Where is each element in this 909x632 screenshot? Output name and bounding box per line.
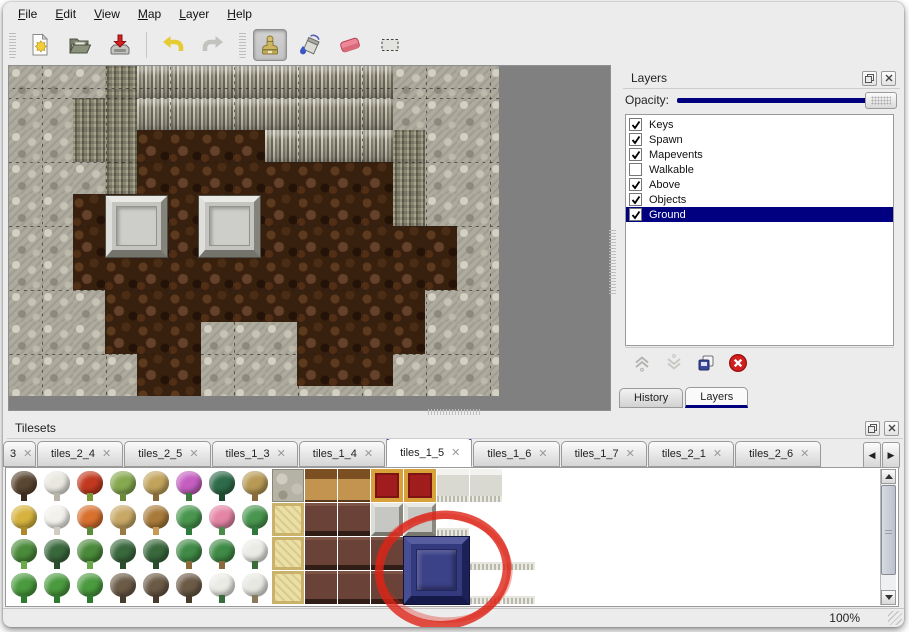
tileset-tab-tiles_1_3[interactable]: tiles_1_3✕	[212, 441, 298, 467]
map-tile[interactable]	[457, 386, 489, 396]
map-tile[interactable]	[233, 130, 265, 162]
tileset-cell-maroon[interactable]	[338, 571, 370, 604]
tileset-cell-carpet[interactable]	[371, 469, 403, 502]
map-tile[interactable]	[9, 290, 41, 322]
float-panel-button[interactable]	[862, 71, 877, 86]
map-tile[interactable]	[137, 66, 169, 98]
tileset-cell-tanfloor[interactable]	[338, 469, 370, 502]
tileset-tab-tiles_1_6[interactable]: tiles_1_6✕	[473, 441, 559, 467]
map-tile[interactable]	[361, 386, 393, 396]
tileset-cell-bush[interactable]	[41, 537, 73, 570]
tileset-cell-maroon[interactable]	[305, 503, 337, 536]
tileset-cell-bush-pink[interactable]	[173, 469, 205, 502]
map-tile[interactable]	[425, 258, 457, 290]
new-file-button[interactable]	[23, 29, 57, 61]
map-tile[interactable]	[41, 66, 73, 98]
tileset-cell-yellowfloor[interactable]	[272, 571, 304, 604]
map-tile[interactable]	[105, 98, 137, 130]
map-tile[interactable]	[73, 194, 105, 226]
tileset-content[interactable]	[5, 467, 899, 607]
map-tile[interactable]	[233, 386, 265, 396]
tileset-tab-tiles_1_4[interactable]: tiles_1_4✕	[299, 441, 385, 467]
map-tile[interactable]	[233, 258, 265, 290]
save-file-button[interactable]	[103, 29, 137, 61]
layer-row-mapevents[interactable]: Mapevents	[626, 147, 893, 162]
horizontal-splitter-grip[interactable]	[428, 409, 480, 415]
tab-history[interactable]: History	[619, 388, 683, 408]
map-tile[interactable]	[393, 322, 425, 354]
tileset-cell-bush[interactable]	[140, 537, 172, 570]
close-panel-button[interactable]	[881, 71, 896, 86]
map-tile[interactable]	[457, 226, 489, 258]
map-tile[interactable]	[265, 258, 297, 290]
map-tile[interactable]	[393, 194, 425, 226]
stamp-tool-button[interactable]	[253, 29, 287, 61]
map-tile[interactable]	[265, 162, 297, 194]
map-tile[interactable]	[137, 162, 169, 194]
open-file-button[interactable]	[63, 29, 97, 61]
map-tile[interactable]	[9, 162, 41, 194]
map-tile[interactable]	[329, 290, 361, 322]
tileset-cell-tanfloor[interactable]	[305, 469, 337, 502]
tileset-cell-cone[interactable]	[74, 571, 106, 604]
tileset-cell-tree-snow[interactable]	[41, 469, 73, 502]
tileset-cell-stone[interactable]	[272, 469, 304, 502]
map-tile[interactable]	[201, 66, 233, 98]
layer-visibility-checkbox[interactable]	[629, 148, 642, 161]
map-tile[interactable]	[425, 290, 457, 322]
map-tile[interactable]	[489, 290, 499, 322]
map-tile[interactable]	[73, 226, 105, 258]
map-tile[interactable]	[9, 194, 41, 226]
map-tile[interactable]	[233, 66, 265, 98]
map-tile[interactable]	[457, 130, 489, 162]
map-tile[interactable]	[233, 290, 265, 322]
tileset-cell-trunk[interactable]	[140, 469, 172, 502]
map-tile[interactable]	[297, 130, 329, 162]
map-tile[interactable]	[297, 162, 329, 194]
layer-row-keys[interactable]: Keys	[626, 117, 893, 132]
tileset-tab-3[interactable]: 3✕	[3, 441, 36, 467]
map-tile[interactable]	[9, 130, 41, 162]
map-tile[interactable]	[201, 162, 233, 194]
map-tile[interactable]	[265, 226, 297, 258]
map-tile[interactable]	[41, 98, 73, 130]
tileset-cell-flower-red[interactable]	[74, 469, 106, 502]
layer-visibility-checkbox[interactable]	[629, 208, 642, 221]
tab-close-icon[interactable]: ✕	[102, 449, 111, 459]
scroll-down-button[interactable]	[881, 590, 896, 605]
tileset-cell-cone[interactable]	[8, 571, 40, 604]
tileset-cell-sprouts[interactable]	[8, 537, 40, 570]
tab-close-icon[interactable]: ✕	[538, 449, 547, 459]
map-tile[interactable]	[489, 322, 499, 354]
map-tile[interactable]	[329, 66, 361, 98]
map-tile[interactable]	[297, 354, 329, 386]
map-tile[interactable]	[265, 130, 297, 162]
map-tile[interactable]	[169, 226, 201, 258]
map-platform-tile[interactable]	[199, 196, 260, 257]
layer-visibility-checkbox[interactable]	[629, 118, 642, 131]
tileset-cell-blank[interactable]	[503, 469, 535, 502]
raise-layer-button[interactable]	[631, 352, 653, 374]
map-tile[interactable]	[265, 194, 297, 226]
tab-close-icon[interactable]: ✕	[451, 448, 460, 458]
tileset-cell-palm[interactable]	[173, 537, 205, 570]
layer-row-objects[interactable]: Objects	[626, 192, 893, 207]
layer-visibility-checkbox[interactable]	[629, 178, 642, 191]
map-tile[interactable]	[489, 386, 499, 396]
map-tile[interactable]	[137, 290, 169, 322]
map-tile[interactable]	[297, 66, 329, 98]
toolbar-grip[interactable]	[9, 32, 16, 58]
tileset-cell-whitetile[interactable]	[503, 537, 535, 570]
map-tile[interactable]	[265, 66, 297, 98]
map-tile[interactable]	[297, 98, 329, 130]
map-tile[interactable]	[9, 322, 41, 354]
map-tile[interactable]	[457, 322, 489, 354]
map-tile[interactable]	[9, 386, 41, 396]
map-tile[interactable]	[361, 322, 393, 354]
map-tile[interactable]	[41, 290, 73, 322]
delete-layer-button[interactable]	[727, 352, 749, 374]
tab-close-icon[interactable]: ✕	[364, 449, 373, 459]
map-tile[interactable]	[201, 258, 233, 290]
map-tile[interactable]	[457, 98, 489, 130]
tileset-cell-yellowfloor[interactable]	[272, 503, 304, 536]
tileset-tab-tiles_2_6[interactable]: tiles_2_6✕	[735, 441, 821, 467]
tileset-cell-stump[interactable]	[107, 469, 139, 502]
map-tile[interactable]	[297, 226, 329, 258]
map-tile[interactable]	[489, 354, 499, 386]
map-tile[interactable]	[41, 386, 73, 396]
map-tile[interactable]	[457, 258, 489, 290]
map-tile[interactable]	[201, 290, 233, 322]
menu-file[interactable]: File	[9, 4, 46, 24]
tileset-cell-stump-snow[interactable]	[239, 571, 271, 604]
tileset-cell-sprouts[interactable]	[74, 537, 106, 570]
tileset-cell-whitetile[interactable]	[470, 571, 502, 604]
menu-edit[interactable]: Edit	[46, 4, 85, 24]
tab-close-icon[interactable]: ✕	[23, 449, 32, 459]
map-tile[interactable]	[425, 194, 457, 226]
tileset-cell-bush[interactable]	[107, 537, 139, 570]
selected-blue-tile[interactable]	[404, 537, 469, 604]
menu-view[interactable]: View	[85, 4, 129, 24]
map-tile[interactable]	[169, 98, 201, 130]
tileset-scrollbar[interactable]	[880, 469, 896, 605]
map-tile[interactable]	[393, 98, 425, 130]
float-tilesets-button[interactable]	[865, 421, 880, 436]
tileset-cell-tree-twist[interactable]	[173, 571, 205, 604]
tab-close-icon[interactable]: ✕	[189, 449, 198, 459]
layer-visibility-checkbox[interactable]	[629, 193, 642, 206]
tileset-cell-whitetile[interactable]	[470, 537, 502, 570]
map-tile[interactable]	[73, 386, 105, 396]
map-tile[interactable]	[9, 258, 41, 290]
map-tile[interactable]	[137, 386, 169, 396]
tileset-cell-leaves[interactable]	[140, 503, 172, 536]
map-viewport[interactable]	[9, 66, 499, 396]
tileset-cell-tree-twist[interactable]	[107, 571, 139, 604]
map-tile[interactable]	[105, 322, 137, 354]
toolbar-grip-2[interactable]	[239, 32, 246, 58]
tileset-cell-tree-twist[interactable]	[140, 571, 172, 604]
tileset-cell-tree-dead[interactable]	[8, 469, 40, 502]
map-tile[interactable]	[201, 98, 233, 130]
map-tile[interactable]	[425, 130, 457, 162]
map-tile[interactable]	[9, 66, 41, 98]
redo-button[interactable]	[196, 29, 230, 61]
menu-help[interactable]: Help	[218, 4, 261, 24]
map-tile[interactable]	[201, 354, 233, 386]
map-tile[interactable]	[105, 66, 137, 98]
menu-layer[interactable]: Layer	[170, 4, 218, 24]
map-tile[interactable]	[169, 322, 201, 354]
map-tile[interactable]	[169, 194, 201, 226]
map-tile[interactable]	[393, 66, 425, 98]
tileset-cell-plant-tan[interactable]	[239, 469, 271, 502]
map-tile[interactable]	[425, 226, 457, 258]
map-tile[interactable]	[41, 258, 73, 290]
map-tile[interactable]	[137, 130, 169, 162]
map-tile[interactable]	[393, 226, 425, 258]
vertical-splitter-grip[interactable]	[609, 230, 616, 294]
map-tile[interactable]	[457, 194, 489, 226]
opacity-slider-handle[interactable]	[865, 92, 897, 109]
map-tile[interactable]	[393, 290, 425, 322]
map-tile[interactable]	[489, 258, 499, 290]
tileset-cell-lily[interactable]	[239, 503, 271, 536]
map-tile[interactable]	[169, 354, 201, 386]
tileset-cell-whitetile[interactable]	[503, 571, 535, 604]
map-tile[interactable]	[425, 98, 457, 130]
map-tile[interactable]	[457, 354, 489, 386]
tileset-cell-grayblock[interactable]	[404, 503, 436, 536]
tab-close-icon[interactable]: ✕	[277, 449, 286, 459]
map-tile[interactable]	[425, 386, 457, 396]
map-tile[interactable]	[329, 386, 361, 396]
map-tile[interactable]	[329, 194, 361, 226]
map-tile[interactable]	[489, 98, 499, 130]
tab-scroll-right-button[interactable]: ▶	[882, 442, 900, 469]
tileset-cell-blank[interactable]	[470, 503, 502, 536]
menu-map[interactable]: Map	[129, 4, 170, 24]
map-tile[interactable]	[329, 258, 361, 290]
tab-close-icon[interactable]: ✕	[713, 449, 722, 459]
map-tile[interactable]	[9, 98, 41, 130]
layer-row-walkable[interactable]: Walkable	[626, 162, 893, 177]
map-tile[interactable]	[361, 258, 393, 290]
map-tile[interactable]	[329, 354, 361, 386]
tileset-cell-whitetile[interactable]	[437, 503, 469, 536]
map-tile[interactable]	[105, 354, 137, 386]
undo-button[interactable]	[156, 29, 190, 61]
map-tile[interactable]	[73, 258, 105, 290]
map-tile[interactable]	[137, 258, 169, 290]
tab-close-icon[interactable]: ✕	[800, 449, 809, 459]
tileset-cell-pine-snow[interactable]	[239, 537, 271, 570]
tileset-tab-tiles_1_5[interactable]: tiles_1_5✕	[386, 439, 472, 467]
tab-layers[interactable]: Layers	[685, 387, 748, 408]
map-tile[interactable]	[9, 226, 41, 258]
map-tile[interactable]	[137, 354, 169, 386]
map-tile[interactable]	[361, 226, 393, 258]
map-tile[interactable]	[265, 386, 297, 396]
map-tile[interactable]	[297, 258, 329, 290]
map-tile[interactable]	[105, 162, 137, 194]
map-tile[interactable]	[361, 162, 393, 194]
map-tile[interactable]	[265, 98, 297, 130]
map-tile[interactable]	[329, 226, 361, 258]
tileset-cell-flower-orange[interactable]	[74, 503, 106, 536]
map-tile[interactable]	[425, 66, 457, 98]
fill-tool-button[interactable]	[293, 29, 327, 61]
map-tile[interactable]	[361, 130, 393, 162]
map-tile[interactable]	[73, 290, 105, 322]
map-tile[interactable]	[137, 98, 169, 130]
tab-close-icon[interactable]: ✕	[626, 449, 635, 459]
tileset-cell-maroon[interactable]	[305, 537, 337, 570]
map-tile[interactable]	[265, 322, 297, 354]
map-tile[interactable]	[329, 130, 361, 162]
layer-row-ground[interactable]: Ground	[626, 207, 893, 222]
map-tile[interactable]	[361, 98, 393, 130]
map-tile[interactable]	[457, 290, 489, 322]
tileset-cell-plant-dark[interactable]	[206, 469, 238, 502]
scrollbar-thumb[interactable]	[881, 485, 896, 575]
layer-row-spawn[interactable]: Spawn	[626, 132, 893, 147]
tileset-cell-maroon[interactable]	[305, 571, 337, 604]
map-tile[interactable]	[361, 354, 393, 386]
map-tile[interactable]	[41, 226, 73, 258]
opacity-slider-track[interactable]	[677, 98, 893, 103]
close-tilesets-button[interactable]	[884, 421, 899, 436]
map-tile[interactable]	[233, 98, 265, 130]
map-canvas-panel[interactable]	[8, 65, 611, 411]
map-tile[interactable]	[425, 162, 457, 194]
map-tile[interactable]	[489, 130, 499, 162]
select-tool-button[interactable]	[373, 29, 407, 61]
tileset-cell-cloth[interactable]	[470, 469, 502, 502]
map-tile[interactable]	[297, 386, 329, 396]
map-tile[interactable]	[9, 354, 41, 386]
tileset-cell-grayblock[interactable]	[371, 503, 403, 536]
tileset-cell-maroon[interactable]	[371, 537, 403, 570]
map-tile[interactable]	[425, 354, 457, 386]
tileset-tab-tiles_2_5[interactable]: tiles_2_5✕	[124, 441, 210, 467]
map-tile[interactable]	[297, 322, 329, 354]
map-tile[interactable]	[41, 322, 73, 354]
map-tile[interactable]	[169, 290, 201, 322]
scroll-up-button[interactable]	[881, 469, 896, 484]
map-tile[interactable]	[393, 258, 425, 290]
map-platform-tile[interactable]	[106, 196, 167, 257]
map-tile[interactable]	[393, 130, 425, 162]
map-tile[interactable]	[41, 130, 73, 162]
tileset-cell-cloth[interactable]	[437, 469, 469, 502]
tileset-cell-mound-snow[interactable]	[41, 503, 73, 536]
tab-scroll-left-button[interactable]: ◀	[863, 442, 881, 469]
map-tile[interactable]	[41, 354, 73, 386]
map-tile[interactable]	[489, 226, 499, 258]
map-tile[interactable]	[393, 162, 425, 194]
map-tile[interactable]	[137, 322, 169, 354]
tileset-cell-yellowfloor[interactable]	[272, 537, 304, 570]
tileset-cell-maroon[interactable]	[371, 571, 403, 604]
map-tile[interactable]	[105, 130, 137, 162]
tileset-cell-maroon[interactable]	[338, 537, 370, 570]
map-tile[interactable]	[233, 354, 265, 386]
tileset-tab-tiles_2_4[interactable]: tiles_2_4✕	[37, 441, 123, 467]
tileset-cell-lily[interactable]	[173, 503, 205, 536]
map-tile[interactable]	[201, 322, 233, 354]
map-tile[interactable]	[73, 322, 105, 354]
map-tile[interactable]	[201, 386, 233, 396]
tileset-cell-palm[interactable]	[206, 537, 238, 570]
tileset-cell-carpet[interactable]	[404, 469, 436, 502]
duplicate-layer-button[interactable]	[695, 352, 717, 374]
opacity-slider[interactable]	[677, 92, 897, 108]
map-tile[interactable]	[457, 66, 489, 98]
map-tile[interactable]	[41, 162, 73, 194]
layer-visibility-checkbox[interactable]	[629, 133, 642, 146]
tileset-cell-hay[interactable]	[8, 503, 40, 536]
map-tile[interactable]	[201, 130, 233, 162]
map-tile[interactable]	[169, 66, 201, 98]
map-tile[interactable]	[105, 386, 137, 396]
layer-row-above[interactable]: Above	[626, 177, 893, 192]
map-tile[interactable]	[393, 386, 425, 396]
map-tile[interactable]	[457, 162, 489, 194]
map-tile[interactable]	[489, 66, 499, 98]
map-tile[interactable]	[73, 98, 105, 130]
map-tile[interactable]	[297, 194, 329, 226]
map-tile[interactable]	[329, 322, 361, 354]
map-tile[interactable]	[329, 162, 361, 194]
map-tile[interactable]	[361, 66, 393, 98]
tileset-tab-tiles_2_1[interactable]: tiles_2_1✕	[648, 441, 734, 467]
map-tile[interactable]	[169, 386, 201, 396]
map-tile[interactable]	[329, 98, 361, 130]
map-tile[interactable]	[41, 194, 73, 226]
map-tile[interactable]	[393, 354, 425, 386]
map-tile[interactable]	[489, 194, 499, 226]
map-tile[interactable]	[73, 162, 105, 194]
map-tile[interactable]	[297, 290, 329, 322]
map-tile[interactable]	[233, 322, 265, 354]
tileset-cell-pine-snow[interactable]	[206, 571, 238, 604]
map-tile[interactable]	[169, 130, 201, 162]
tileset-tab-tiles_1_7[interactable]: tiles_1_7✕	[561, 441, 647, 467]
map-tile[interactable]	[425, 322, 457, 354]
map-tile[interactable]	[73, 66, 105, 98]
map-tile[interactable]	[361, 194, 393, 226]
map-tile[interactable]	[489, 162, 499, 194]
tileset-cell-grass-dry[interactable]	[107, 503, 139, 536]
tileset-cell-blank[interactable]	[503, 503, 535, 536]
tileset-cell-maroon[interactable]	[338, 503, 370, 536]
map-tile[interactable]	[105, 290, 137, 322]
eraser-tool-button[interactable]	[333, 29, 367, 61]
tileset-cell-cone[interactable]	[41, 571, 73, 604]
map-tile[interactable]	[105, 258, 137, 290]
map-tile[interactable]	[361, 290, 393, 322]
layer-visibility-checkbox[interactable]	[629, 163, 642, 176]
tileset-cell-roses[interactable]	[206, 503, 238, 536]
map-tile[interactable]	[169, 162, 201, 194]
map-tile[interactable]	[169, 258, 201, 290]
